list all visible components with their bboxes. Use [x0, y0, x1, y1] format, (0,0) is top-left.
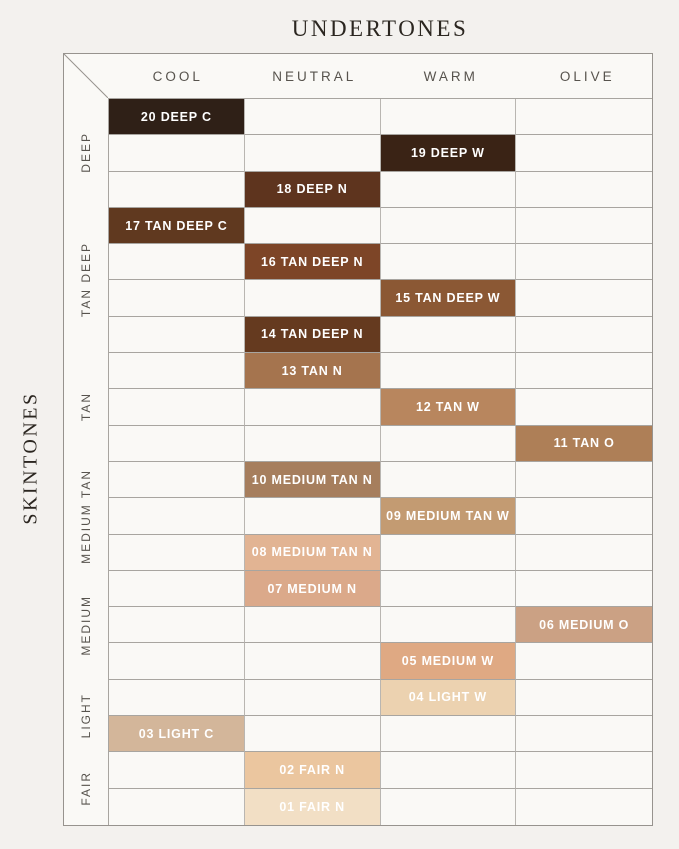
shade-chart-page: UNDERTONES SKINTONES COOLNEUTRALWARMOLIV… — [0, 0, 679, 849]
shade-cell-03-light-c: 03 LIGHT C — [109, 716, 245, 752]
shade-label: 01 FAIR N — [279, 800, 345, 814]
empty-cell — [516, 317, 652, 353]
empty-cell — [516, 280, 652, 316]
empty-cell — [109, 498, 245, 534]
shade-cell-08-medium-tan-n: 08 MEDIUM TAN N — [245, 535, 381, 571]
shade-matrix-table: COOLNEUTRALWARMOLIVE DEEPTAN DEEPTANMEDI… — [63, 53, 653, 826]
shade-cell-13-tan-n: 13 TAN N — [245, 353, 381, 389]
undertones-title: UNDERTONES — [107, 16, 653, 42]
group-label: MEDIUM TAN — [79, 469, 93, 564]
shade-label: 15 TAN DEEP W — [395, 291, 500, 305]
empty-cell — [516, 535, 652, 571]
empty-cell — [381, 172, 517, 208]
shade-label: 07 MEDIUM N — [267, 582, 356, 596]
shade-label: 14 TAN DEEP N — [261, 327, 363, 341]
shade-cell-05-medium-w: 05 MEDIUM W — [381, 643, 517, 679]
empty-cell — [516, 752, 652, 788]
empty-cell — [516, 680, 652, 716]
group-label: TAN — [79, 392, 93, 421]
empty-cell — [109, 607, 245, 643]
empty-cell — [381, 571, 517, 607]
empty-cell — [245, 280, 381, 316]
shade-label: 18 DEEP N — [277, 182, 348, 196]
diagonal-line-icon — [64, 54, 108, 98]
column-header-cool: COOL — [108, 54, 245, 98]
skintones-axis-label-text: SKINTONES — [20, 391, 43, 524]
empty-cell — [381, 462, 517, 498]
empty-cell — [381, 353, 517, 389]
shade-cell-04-light-w: 04 LIGHT W — [381, 680, 517, 716]
empty-cell — [245, 426, 381, 462]
shade-grid: 20 DEEP C19 DEEP W18 DEEP N17 TAN DEEP C… — [108, 98, 652, 825]
empty-cell — [109, 752, 245, 788]
empty-cell — [381, 716, 517, 752]
empty-cell — [381, 607, 517, 643]
empty-cell — [381, 208, 517, 244]
shade-label: 10 MEDIUM TAN N — [252, 473, 373, 487]
shade-cell-01-fair-n: 01 FAIR N — [245, 789, 381, 825]
shade-cell-16-tan-deep-n: 16 TAN DEEP N — [245, 244, 381, 280]
empty-cell — [109, 535, 245, 571]
empty-cell — [109, 280, 245, 316]
shade-cell-18-deep-n: 18 DEEP N — [245, 172, 381, 208]
skintone-group-light: LIGHT — [64, 680, 108, 753]
empty-cell — [516, 208, 652, 244]
empty-cell — [381, 317, 517, 353]
empty-cell — [109, 643, 245, 679]
empty-cell — [109, 571, 245, 607]
empty-cell — [381, 752, 517, 788]
empty-cell — [245, 498, 381, 534]
empty-cell — [516, 462, 652, 498]
column-header-warm: WARM — [381, 54, 518, 98]
group-label: FAIR — [79, 771, 93, 806]
shade-label: 08 MEDIUM TAN N — [252, 545, 373, 559]
shade-cell-20-deep-c: 20 DEEP C — [109, 99, 245, 135]
skintone-group-medium: MEDIUM — [64, 571, 108, 680]
shade-label: 13 TAN N — [282, 364, 343, 378]
empty-cell — [245, 607, 381, 643]
corner-diagonal — [64, 54, 108, 98]
empty-cell — [245, 135, 381, 171]
shade-cell-12-tan-w: 12 TAN W — [381, 389, 517, 425]
empty-cell — [516, 716, 652, 752]
empty-cell — [516, 99, 652, 135]
shade-cell-07-medium-n: 07 MEDIUM N — [245, 571, 381, 607]
shade-cell-06-medium-o: 06 MEDIUM O — [516, 607, 652, 643]
shade-cell-14-tan-deep-n: 14 TAN DEEP N — [245, 317, 381, 353]
skintone-group-tan-deep: TAN DEEP — [64, 207, 108, 352]
empty-cell — [245, 716, 381, 752]
skintone-group-fair: FAIR — [64, 752, 108, 825]
shade-label: 02 FAIR N — [279, 763, 345, 777]
empty-cell — [381, 244, 517, 280]
column-header-olive: OLIVE — [518, 54, 655, 98]
group-label: LIGHT — [79, 693, 93, 738]
shade-label: 11 TAN O — [554, 436, 615, 450]
empty-cell — [516, 389, 652, 425]
shade-cell-19-deep-w: 19 DEEP W — [381, 135, 517, 171]
empty-cell — [245, 99, 381, 135]
shade-label: 20 DEEP C — [141, 110, 212, 124]
shade-label: 09 MEDIUM TAN W — [386, 509, 510, 523]
shade-label: 05 MEDIUM W — [402, 654, 494, 668]
empty-cell — [516, 244, 652, 280]
empty-cell — [381, 789, 517, 825]
shade-label: 16 TAN DEEP N — [261, 255, 363, 269]
empty-cell — [516, 135, 652, 171]
shade-label: 17 TAN DEEP C — [125, 219, 227, 233]
skintone-group-medium-tan: MEDIUM TAN — [64, 462, 108, 571]
empty-cell — [516, 498, 652, 534]
empty-cell — [109, 244, 245, 280]
skintone-group-tan: TAN — [64, 352, 108, 461]
group-label: DEEP — [79, 132, 93, 173]
shade-cell-17-tan-deep-c: 17 TAN DEEP C — [109, 208, 245, 244]
group-label: TAN DEEP — [79, 242, 93, 317]
skintone-group-column: DEEPTAN DEEPTANMEDIUM TANMEDIUMLIGHTFAIR — [64, 98, 108, 825]
skintone-group-deep: DEEP — [64, 98, 108, 207]
empty-cell — [381, 426, 517, 462]
shade-label: 06 MEDIUM O — [539, 618, 629, 632]
column-header-neutral: NEUTRAL — [245, 54, 382, 98]
shade-cell-15-tan-deep-w: 15 TAN DEEP W — [381, 280, 517, 316]
empty-cell — [381, 535, 517, 571]
undertone-header-row: COOLNEUTRALWARMOLIVE — [108, 54, 654, 98]
shade-cell-02-fair-n: 02 FAIR N — [245, 752, 381, 788]
empty-cell — [109, 789, 245, 825]
skintones-axis-label: SKINTONES — [20, 391, 43, 524]
empty-cell — [109, 462, 245, 498]
empty-cell — [109, 135, 245, 171]
empty-cell — [245, 680, 381, 716]
group-label: MEDIUM — [79, 595, 93, 656]
empty-cell — [245, 643, 381, 679]
shade-label: 04 LIGHT W — [409, 690, 487, 704]
shade-label: 03 LIGHT C — [139, 727, 214, 741]
empty-cell — [516, 643, 652, 679]
empty-cell — [109, 317, 245, 353]
empty-cell — [245, 389, 381, 425]
empty-cell — [109, 353, 245, 389]
empty-cell — [109, 389, 245, 425]
empty-cell — [381, 99, 517, 135]
empty-cell — [516, 789, 652, 825]
empty-cell — [516, 571, 652, 607]
shade-cell-09-medium-tan-w: 09 MEDIUM TAN W — [381, 498, 517, 534]
empty-cell — [516, 172, 652, 208]
empty-cell — [109, 172, 245, 208]
empty-cell — [109, 426, 245, 462]
shade-cell-10-medium-tan-n: 10 MEDIUM TAN N — [245, 462, 381, 498]
empty-cell — [516, 353, 652, 389]
empty-cell — [109, 680, 245, 716]
shade-label: 12 TAN W — [416, 400, 480, 414]
empty-cell — [245, 208, 381, 244]
shade-cell-11-tan-o: 11 TAN O — [516, 426, 652, 462]
shade-label: 19 DEEP W — [411, 146, 485, 160]
